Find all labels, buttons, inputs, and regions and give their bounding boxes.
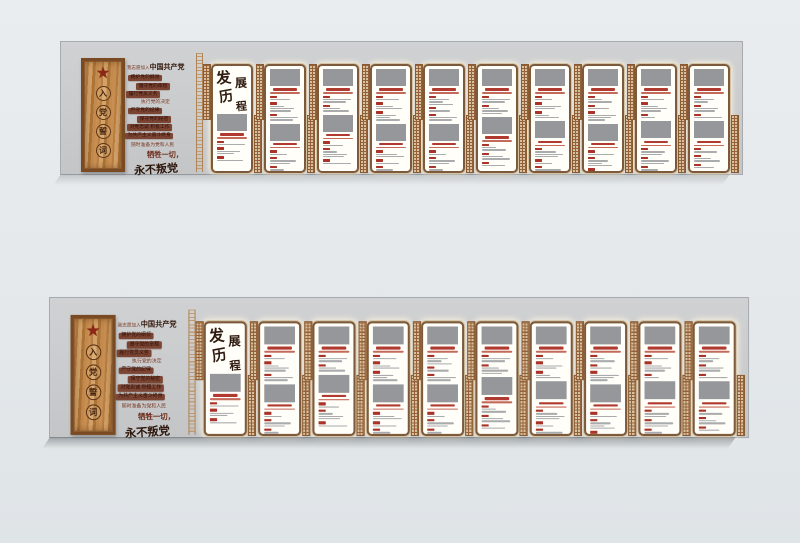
lattice-divider-upper xyxy=(309,64,317,120)
date-badge xyxy=(482,415,489,418)
date-badge xyxy=(590,431,597,434)
calligraphy-char: 程 xyxy=(235,98,247,115)
text-line-bar xyxy=(536,435,556,436)
text-line-bar xyxy=(535,106,561,107)
date-badge xyxy=(590,364,597,367)
timeline-entry xyxy=(210,409,241,416)
text-line-bar xyxy=(590,375,618,376)
date-badge xyxy=(641,148,648,150)
photo-placeholder xyxy=(641,69,671,86)
text-line-bar xyxy=(694,167,714,168)
text-line-bar xyxy=(641,163,664,164)
text-line-bar xyxy=(429,104,453,105)
content-panel xyxy=(476,64,518,173)
text-line-bar xyxy=(429,163,449,164)
text-line-bar xyxy=(699,423,725,424)
date-badge xyxy=(645,410,652,413)
date-badge xyxy=(373,371,380,374)
photo-placeholder xyxy=(323,115,353,132)
timeline-entry xyxy=(590,371,621,381)
timeline-entry xyxy=(427,373,458,380)
lattice-divider-lower xyxy=(682,375,690,436)
lattice-divider-upper xyxy=(574,64,582,120)
timeline-entry xyxy=(536,355,567,360)
timeline-entry xyxy=(482,415,513,422)
text-line-bar xyxy=(373,379,398,380)
timeline-entry xyxy=(427,366,458,371)
date-badge xyxy=(323,148,330,150)
timeline-entry xyxy=(482,162,512,167)
timeline-entry xyxy=(641,96,671,101)
timeline-entry xyxy=(373,355,404,360)
panel-subtitle-bar xyxy=(482,401,513,403)
panel-title-bar xyxy=(485,136,509,138)
culture-wall-banner-upper: ★ 入党誓词 我志愿加入中国共产党拥护党的纲领遵守党的章程履行党员义务执行党的决… xyxy=(60,41,743,175)
text-line-bar xyxy=(376,163,399,164)
panel-title-bar xyxy=(697,141,721,143)
text-line-bar xyxy=(373,365,391,366)
panel-title-bar xyxy=(430,404,455,407)
lattice-divider-lower xyxy=(625,115,633,173)
date-badge xyxy=(641,166,648,168)
text-line-bar xyxy=(535,154,563,155)
text-line-bar xyxy=(264,432,279,433)
date-badge xyxy=(535,159,542,161)
text-line-bar xyxy=(588,172,609,173)
text-line-bar xyxy=(645,370,665,371)
date-badge xyxy=(429,96,436,98)
text-line-bar xyxy=(536,365,562,366)
text-line-bar xyxy=(694,101,708,102)
text-line-bar xyxy=(427,358,447,359)
text-line-bar xyxy=(645,358,668,359)
lattice-divider-lower xyxy=(254,115,262,173)
text-line-bar xyxy=(699,430,719,431)
content-panel xyxy=(529,64,571,173)
content-panel xyxy=(688,64,730,173)
date-badge xyxy=(376,166,383,168)
text-line-bar xyxy=(645,416,667,417)
text-line-bar xyxy=(535,108,555,109)
lattice-divider-lower xyxy=(519,115,527,173)
date-badge xyxy=(590,355,597,358)
text-line-bar xyxy=(641,108,667,109)
banner-strip: ★ 入党誓词 我志愿加入中国共产党拥护党的纲领遵守党的章程履行党员义务执行党的决… xyxy=(60,41,743,175)
date-badge xyxy=(264,429,271,432)
timeline-entry xyxy=(535,166,565,173)
text-line-bar xyxy=(264,423,290,424)
text-line-bar xyxy=(264,416,282,417)
date-badge xyxy=(699,364,706,367)
lattice-divider-upper xyxy=(359,321,367,380)
panel-subtitle-bar xyxy=(588,147,618,149)
text-line-bar xyxy=(694,108,718,109)
text-line-bar xyxy=(482,358,510,359)
lattice-divider-lower xyxy=(466,115,474,173)
photo-placeholder xyxy=(217,114,247,131)
content-panel xyxy=(367,321,410,436)
panel-title-bar xyxy=(326,134,350,136)
date-badge xyxy=(699,417,706,420)
content-panel xyxy=(258,321,301,436)
panel-subtitle-bar xyxy=(376,147,406,149)
text-line-bar xyxy=(376,106,393,107)
timeline-entry xyxy=(323,159,353,164)
lattice-divider-upper xyxy=(467,321,475,380)
panel-subtitle-bar xyxy=(270,92,300,94)
lattice-divider-upper xyxy=(415,64,423,120)
calligraphy-char: 历 xyxy=(210,343,228,366)
panel-title-bar xyxy=(591,88,615,90)
lattice-divider-upper xyxy=(630,321,638,380)
date-badge xyxy=(482,153,489,155)
date-badge xyxy=(645,373,652,376)
panel-subtitle-bar xyxy=(482,351,513,353)
text-line-bar xyxy=(427,377,455,378)
text-line-bar xyxy=(264,368,289,369)
text-line-bar xyxy=(482,108,499,109)
panel-subtitle-bar xyxy=(373,351,404,353)
text-line-bar xyxy=(590,379,608,380)
date-badge xyxy=(210,418,217,421)
lattice-divider-upper xyxy=(468,64,476,120)
timeline-entry xyxy=(217,147,247,154)
text-line-bar xyxy=(376,115,396,116)
photo-placeholder xyxy=(373,326,404,344)
timeline-entry xyxy=(588,157,618,166)
timeline-entry xyxy=(319,364,350,371)
panel-title-bar xyxy=(432,88,456,90)
panel-title-bar xyxy=(322,395,347,398)
text-line-bar xyxy=(482,113,502,114)
date-badge xyxy=(699,410,706,413)
text-line-bar xyxy=(482,428,505,429)
date-badge xyxy=(588,157,595,159)
text-line-bar xyxy=(536,368,556,369)
timeline-entry xyxy=(699,364,730,371)
text-line-bar xyxy=(270,154,287,155)
timeline-entry xyxy=(427,429,458,436)
photo-placeholder xyxy=(373,384,404,402)
text-line-bar xyxy=(319,413,334,414)
timeline-entry xyxy=(536,362,567,369)
lattice-divider-lower xyxy=(360,115,368,173)
timeline-entry xyxy=(645,410,676,417)
date-badge xyxy=(429,157,436,159)
date-badge xyxy=(535,148,542,150)
timeline-entry xyxy=(699,417,730,424)
text-line-bar xyxy=(699,358,719,359)
panel-subtitle-bar xyxy=(482,140,512,142)
photo-placeholder xyxy=(482,117,512,134)
date-badge xyxy=(694,148,701,150)
timeline-entry xyxy=(264,412,295,417)
panel-subtitle-bar xyxy=(217,137,247,139)
text-line-bar xyxy=(641,117,655,118)
text-line-bar xyxy=(270,106,284,107)
text-line-bar xyxy=(217,144,245,145)
date-badge xyxy=(319,422,326,425)
lattice-divider-upper xyxy=(304,321,312,380)
panel-title-bar xyxy=(379,88,403,90)
text-line-bar xyxy=(482,110,508,111)
timeline-entry xyxy=(264,373,295,380)
panel-title-bar xyxy=(376,404,401,407)
content-panel xyxy=(421,321,464,436)
text-line-bar xyxy=(699,413,722,414)
date-badge xyxy=(535,96,542,98)
timeline-entry xyxy=(270,96,300,101)
date-badge xyxy=(482,162,489,164)
panel-title-bar xyxy=(539,402,564,405)
date-badge xyxy=(264,419,271,422)
timeline-entry xyxy=(319,410,350,420)
timeline-entry xyxy=(645,429,676,436)
text-line-bar xyxy=(590,428,615,429)
timeline-entry xyxy=(319,403,350,408)
text-line-bar xyxy=(694,117,722,118)
date-badge xyxy=(590,412,597,415)
calligraphy-char: 历 xyxy=(217,85,234,107)
panel-title-bar xyxy=(702,402,727,405)
panel-subtitle-bar xyxy=(429,147,459,149)
timeline-entry xyxy=(429,166,459,173)
text-line-bar xyxy=(427,361,442,362)
text-line-bar xyxy=(482,156,503,157)
timeline-entry xyxy=(590,419,621,429)
text-line-bar xyxy=(536,416,564,417)
text-line-bar xyxy=(323,163,351,164)
text-line-bar xyxy=(482,368,500,369)
timeline-entry xyxy=(270,150,300,155)
panel-subtitle-bar xyxy=(590,408,621,410)
text-line-bar xyxy=(645,413,670,414)
panel-subtitle-bar xyxy=(376,92,406,94)
timeline-entry xyxy=(427,355,458,365)
lattice-divider-lower xyxy=(572,115,580,173)
text-line-bar xyxy=(590,368,612,369)
timeline-entry xyxy=(264,355,295,360)
panel-title-bar xyxy=(273,88,297,90)
text-line-bar xyxy=(482,372,502,373)
timeline-entry xyxy=(373,412,404,419)
panel-subtitle-bar xyxy=(429,92,459,94)
content-panel xyxy=(370,64,412,173)
text-line-bar xyxy=(536,413,558,414)
date-badge xyxy=(536,355,543,358)
text-line-bar xyxy=(373,368,399,369)
date-badge xyxy=(590,371,597,374)
text-line-bar xyxy=(319,425,347,426)
timeline-entry xyxy=(429,96,459,105)
text-line-bar xyxy=(641,106,658,107)
date-badge xyxy=(641,102,648,104)
date-badge xyxy=(264,412,271,415)
text-line-bar xyxy=(264,425,284,426)
timeline-entry xyxy=(323,141,353,146)
text-line-bar xyxy=(427,416,445,417)
date-badge xyxy=(482,424,489,427)
panel-subtitle-bar xyxy=(536,351,567,353)
text-line-bar xyxy=(319,406,339,407)
panel-subtitle-bar xyxy=(641,145,671,147)
text-line-bar xyxy=(535,172,555,173)
text-line-bar xyxy=(427,425,447,426)
timeline-entry xyxy=(588,111,618,120)
panel-title-bar xyxy=(644,88,668,90)
date-badge xyxy=(694,96,701,98)
panel-subtitle-bar xyxy=(482,92,512,94)
text-line-bar xyxy=(210,422,236,423)
photo-placeholder xyxy=(376,69,406,86)
lattice-divider-upper xyxy=(250,321,258,380)
date-badge xyxy=(645,362,652,365)
text-line-bar xyxy=(427,432,442,433)
date-badge xyxy=(210,409,217,412)
timeline-entry xyxy=(699,373,730,378)
timeline-entry xyxy=(376,159,406,164)
text-line-bar xyxy=(482,101,505,102)
text-line-bar xyxy=(429,101,443,102)
photo-placeholder xyxy=(427,384,458,402)
text-line-bar xyxy=(319,370,345,371)
timeline-entry xyxy=(588,150,618,155)
timeline-entry xyxy=(645,355,676,360)
timeline-entry xyxy=(694,148,724,153)
timeline-entry xyxy=(270,157,300,164)
text-line-bar xyxy=(536,418,559,419)
timeline-entry xyxy=(323,105,353,112)
date-badge xyxy=(482,364,489,367)
calligraphy-char: 程 xyxy=(229,357,241,375)
panel-title-bar xyxy=(267,404,292,407)
text-line-bar xyxy=(427,370,449,371)
text-line-bar xyxy=(645,435,671,436)
timeline-entry xyxy=(429,107,459,112)
text-line-bar xyxy=(588,117,611,118)
photo-placeholder xyxy=(694,69,724,86)
panel-title-bar xyxy=(538,141,562,143)
text-line-bar xyxy=(323,151,337,152)
timeline-entry xyxy=(694,114,724,119)
date-badge xyxy=(373,429,380,432)
development-intro-panel: 发展历程 xyxy=(204,321,247,436)
timeline-entry xyxy=(535,111,565,118)
panel-subtitle-bar xyxy=(645,351,676,353)
timeline-entry xyxy=(376,166,406,173)
date-badge xyxy=(694,105,701,107)
photo-placeholder xyxy=(482,377,513,395)
timeline-entry xyxy=(645,362,676,372)
text-line-bar xyxy=(588,101,612,102)
text-line-bar xyxy=(590,377,613,378)
text-line-bar xyxy=(323,101,346,102)
date-badge xyxy=(373,355,380,358)
text-line-bar xyxy=(699,361,714,362)
timeline-entry xyxy=(323,148,353,157)
photo-placeholder xyxy=(270,124,300,141)
timeline-entry xyxy=(217,156,247,161)
timeline-entry xyxy=(482,96,512,103)
text-line-bar xyxy=(373,432,391,433)
lattice-divider-lower xyxy=(413,115,421,173)
text-line-bar xyxy=(588,163,602,164)
content-panel xyxy=(423,64,465,173)
text-line-bar xyxy=(270,172,294,173)
timeline-panels-row: 发展历程 xyxy=(50,298,748,437)
text-line-bar xyxy=(641,169,658,170)
date-badge xyxy=(323,159,330,161)
text-line-bar xyxy=(264,358,284,359)
date-badge xyxy=(588,168,595,170)
text-line-bar xyxy=(376,154,397,155)
timeline-entry xyxy=(536,422,567,427)
photo-placeholder xyxy=(319,375,350,393)
date-badge xyxy=(376,159,383,161)
content-panel xyxy=(475,321,518,436)
calligraphy-char: 展 xyxy=(228,332,241,350)
text-line-bar xyxy=(641,160,669,161)
panel-title-bar xyxy=(648,347,673,350)
timeline-entry xyxy=(645,373,676,378)
text-line-bar xyxy=(217,153,234,154)
timeline-entry xyxy=(373,362,404,369)
text-line-bar xyxy=(427,435,452,436)
text-line-bar xyxy=(590,361,615,362)
text-line-bar xyxy=(376,169,393,170)
timeline-entry xyxy=(482,153,512,160)
panel-title-bar xyxy=(430,347,455,350)
timeline-entry xyxy=(217,141,247,146)
panel-subtitle-bar xyxy=(535,145,565,147)
photo-placeholder xyxy=(699,326,730,344)
timeline-entry xyxy=(319,355,350,362)
timeline-entry xyxy=(535,159,565,164)
lattice-divider-lower xyxy=(574,375,582,436)
text-line-bar xyxy=(270,99,290,100)
panel-title-bar xyxy=(432,143,456,145)
culture-wall-banner-lower: ★ 入党誓词 我志愿加入中国共产党拥护党的纲领遵守党的章程履行党员义务执行党的决… xyxy=(49,297,749,438)
timeline-entry xyxy=(536,429,567,436)
lattice-divider-upper xyxy=(522,321,530,380)
text-line-bar xyxy=(210,406,238,407)
timeline-entry xyxy=(376,111,406,120)
timeline-entry xyxy=(641,148,671,155)
panel-title-bar xyxy=(485,347,510,350)
panel-title-bar xyxy=(593,404,618,407)
date-badge xyxy=(264,355,271,358)
text-line-bar xyxy=(536,377,561,378)
panel-title-bar xyxy=(220,133,244,135)
date-badge xyxy=(270,166,277,168)
text-line-bar xyxy=(694,151,717,152)
text-line-bar xyxy=(694,99,714,100)
text-line-bar xyxy=(590,435,612,436)
text-line-bar xyxy=(319,418,341,419)
text-line-bar xyxy=(270,160,296,161)
text-line-bar xyxy=(373,358,396,359)
lattice-divider-lower xyxy=(519,375,527,436)
photo-placeholder xyxy=(270,69,300,86)
photo-placeholder xyxy=(210,374,241,392)
date-badge xyxy=(536,410,543,413)
date-badge xyxy=(373,422,380,425)
date-badge xyxy=(535,111,542,113)
date-badge xyxy=(699,373,706,376)
photo-placeholder xyxy=(429,69,459,86)
timeline-entry xyxy=(641,166,671,173)
development-intro-panel: 发展历程 xyxy=(211,64,253,173)
